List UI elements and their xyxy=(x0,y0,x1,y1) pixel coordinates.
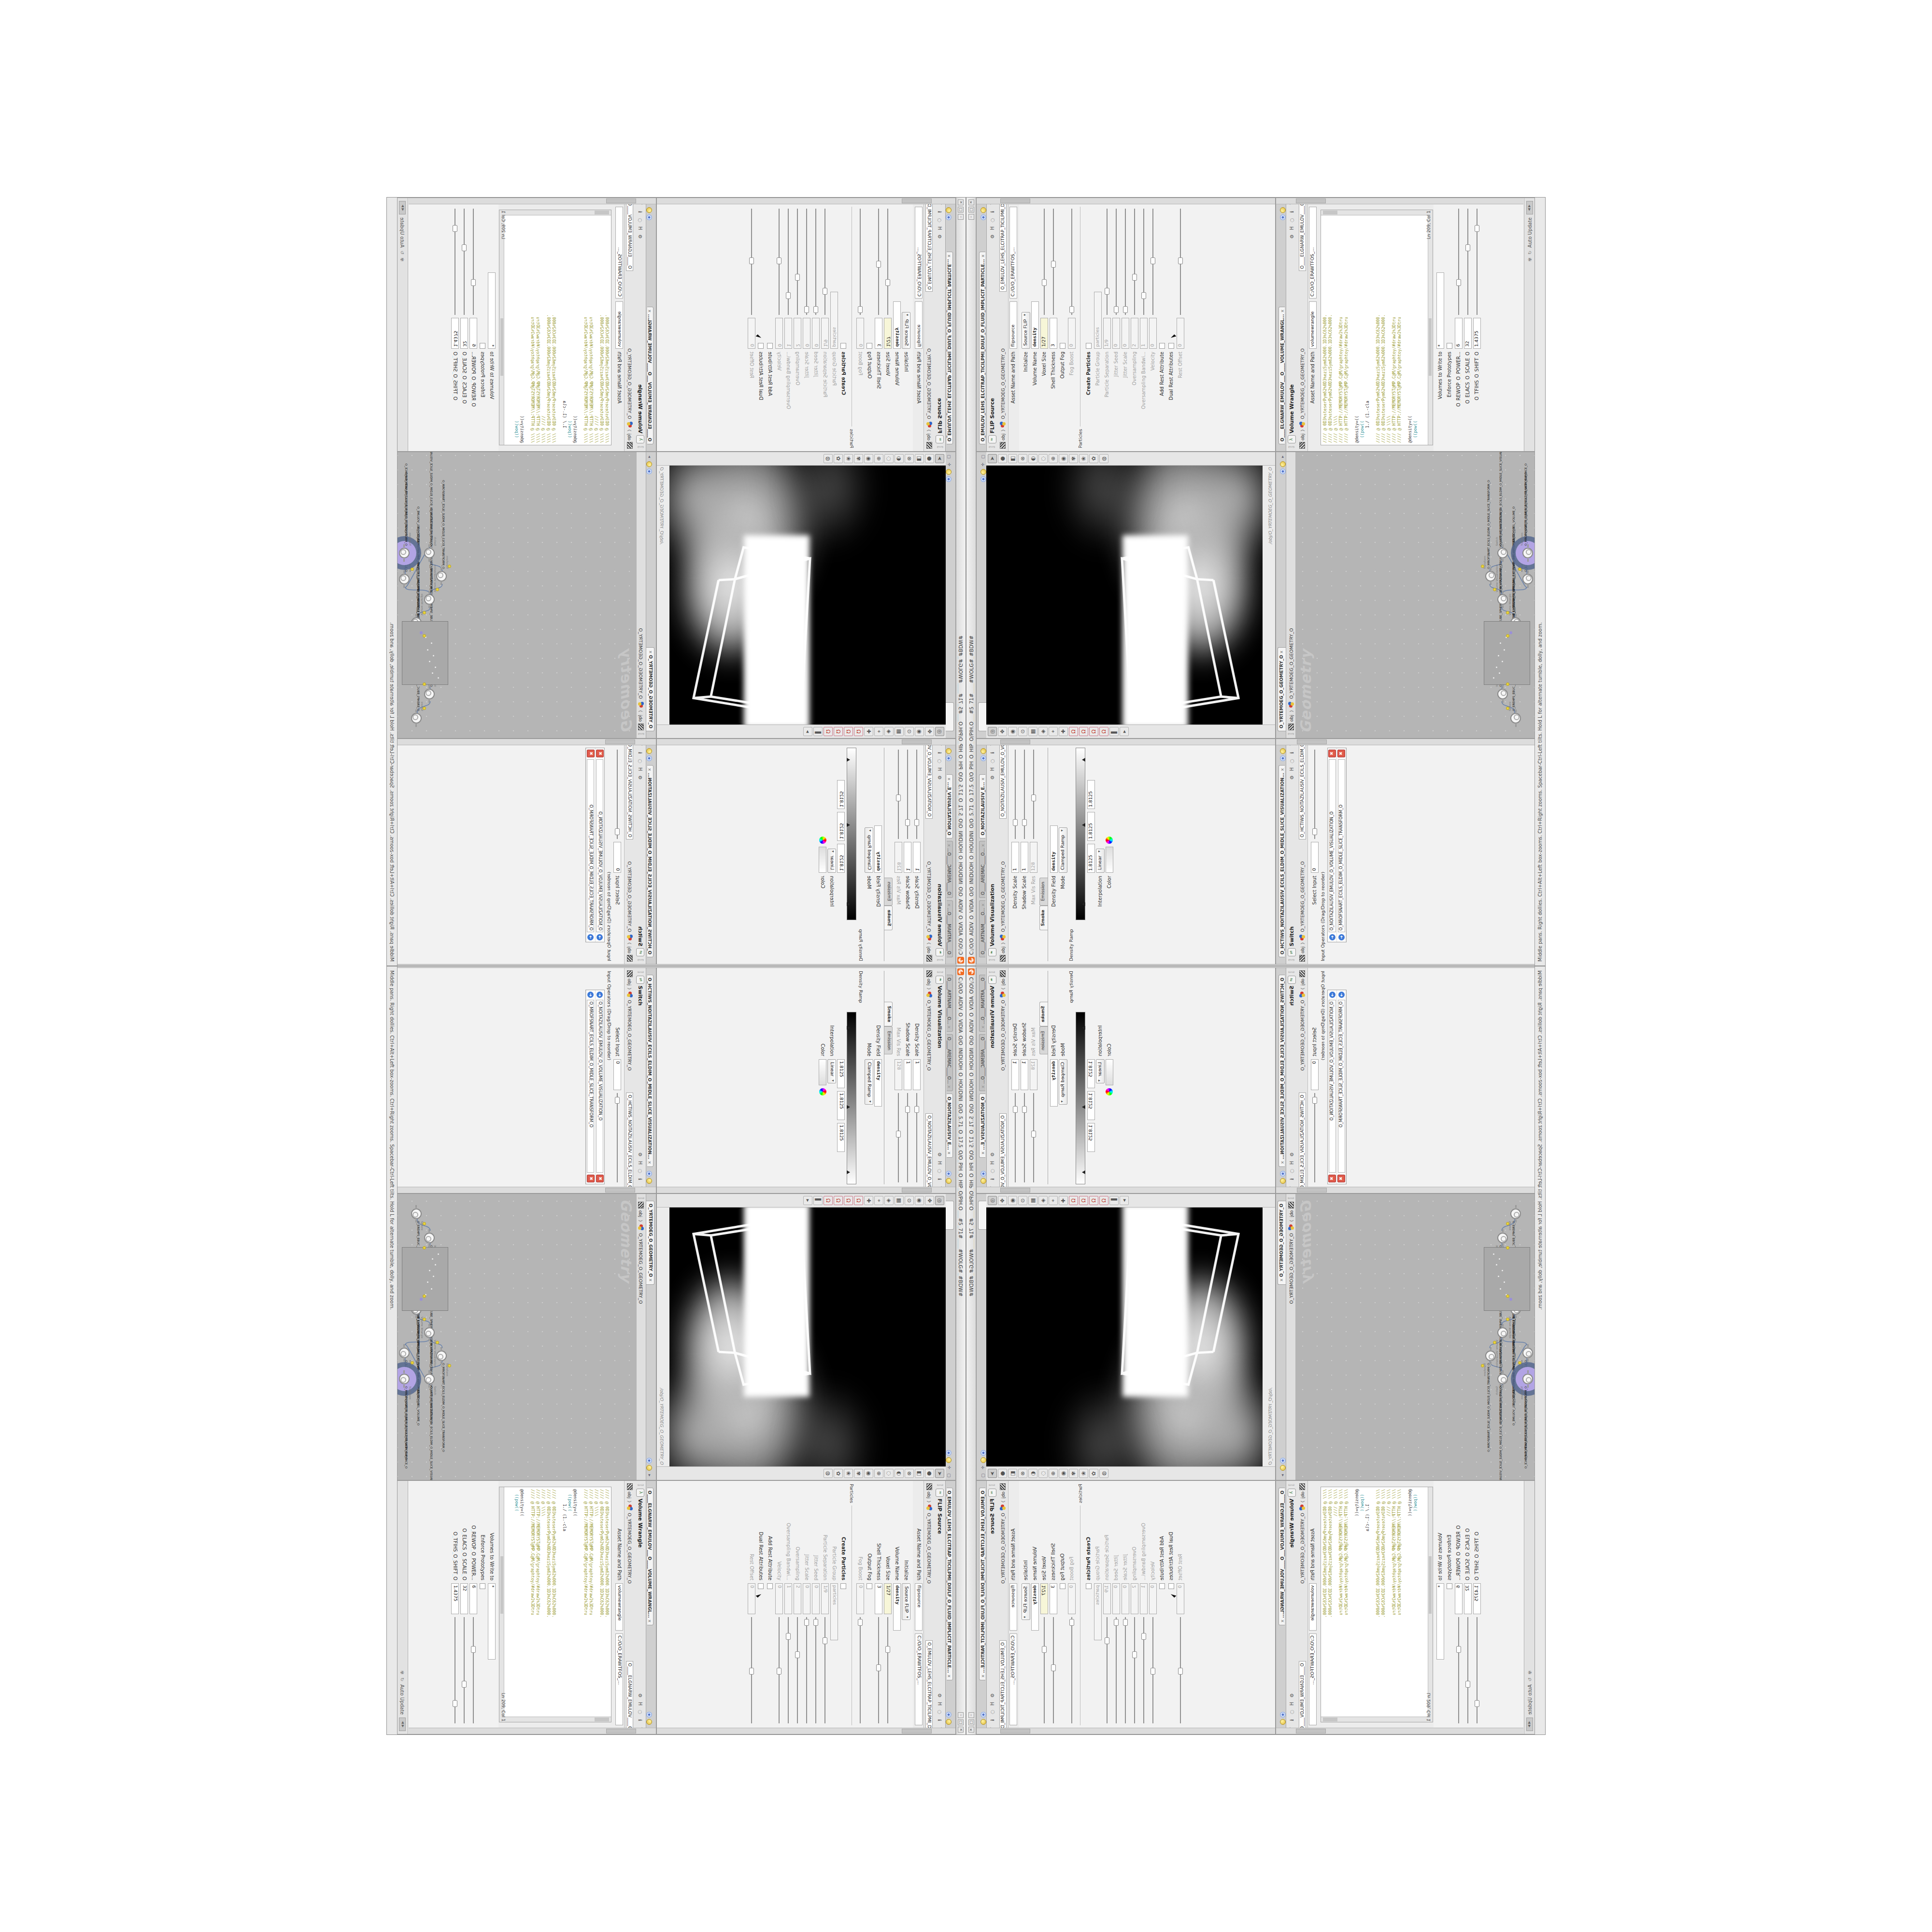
param-field[interactable]: 1/27 xyxy=(1040,1583,1048,1614)
pane-tab[interactable]: O____ELGNARW_EMULOV___O____VOLUME_WRANGL… xyxy=(1279,1488,1285,1625)
jump-to-node-icon[interactable]: ➜ xyxy=(588,992,594,998)
viewport-tool-icon[interactable]: ◎ xyxy=(988,727,997,736)
pin-ball-icon[interactable] xyxy=(980,1719,986,1725)
ramp-marker[interactable] xyxy=(1082,758,1085,762)
viewport-tool-icon[interactable]: ◍ xyxy=(1099,1469,1108,1478)
close-button[interactable]: ✕ xyxy=(968,199,974,205)
param-field[interactable]: 6 xyxy=(1455,318,1463,349)
jump-to-node-icon[interactable]: ➜ xyxy=(1329,934,1335,940)
slider-handle[interactable] xyxy=(1151,1668,1155,1675)
viewport-tool-icon[interactable]: ✾ xyxy=(854,1469,863,1478)
link-radar-icon[interactable] xyxy=(647,469,653,474)
param-slider[interactable] xyxy=(895,1093,902,1184)
link-radar-icon[interactable] xyxy=(647,755,653,761)
ramp-value-field[interactable]: 1.8125 xyxy=(838,1123,845,1152)
viewport-tool-icon[interactable]: Ω xyxy=(1079,727,1088,736)
maximize-button[interactable]: □ xyxy=(968,1719,974,1725)
link-radar-icon[interactable] xyxy=(946,1450,952,1456)
slider-handle[interactable] xyxy=(1132,1651,1137,1658)
color-swatch[interactable] xyxy=(819,1059,827,1085)
delete-input-icon[interactable]: ✖ xyxy=(1328,750,1336,757)
viewport-tool-icon[interactable]: ◧ xyxy=(1008,1469,1017,1478)
viewport-tool-icon[interactable]: ❀ xyxy=(844,454,853,463)
node-flag-dot[interactable] xyxy=(1506,634,1509,638)
param-slider[interactable] xyxy=(1122,1617,1129,1725)
pane-max-icon[interactable]: ▢ xyxy=(946,1472,952,1478)
node-flag-dot[interactable] xyxy=(1506,707,1509,710)
tab-scroll-icon[interactable]: ▸ xyxy=(646,454,653,460)
asset-path-field[interactable]: C:/O/O_ERAWTFOS_... xyxy=(1309,1634,1317,1725)
asset-path-field[interactable]: C:/O/O_ERAWTFOS_... xyxy=(915,207,923,298)
viewport-tool-icon[interactable]: ⊙ xyxy=(905,727,914,736)
breadcrumb-root[interactable]: obj xyxy=(927,979,932,985)
viewport-tool-icon[interactable]: ● xyxy=(925,454,934,463)
viewport-tool-icon[interactable]: ✾ xyxy=(854,454,863,463)
ramp-value-field[interactable]: 1.8125 xyxy=(1087,844,1095,873)
gear-icon[interactable]: ⚙ xyxy=(638,1692,643,1699)
viewport-render[interactable] xyxy=(669,466,946,724)
title-bar[interactable]: C:/O/O_AIDIV_O_VIDIA_O/O_INIDUOH_O_HOUDI… xyxy=(956,966,966,1734)
houdini-help-icon[interactable]: H xyxy=(1289,766,1294,772)
houdini-help-icon[interactable]: H xyxy=(990,766,995,772)
node-name-field[interactable]: O____ELGNARW_EMULOV____O xyxy=(1299,1661,1306,1732)
param-slider[interactable] xyxy=(1140,1617,1147,1725)
gear-icon[interactable]: ⚙ xyxy=(990,774,995,781)
network-node[interactable]: Sphere O_EREHPS_EBUC_O_CUBE_SPHERE_O xyxy=(1510,1208,1522,1220)
viewport-tool-icon[interactable]: ❀ xyxy=(844,1469,853,1478)
viewport-tool-icon[interactable]: ▸ xyxy=(803,1196,812,1205)
tab-close-icon[interactable]: × xyxy=(947,255,951,258)
viewport-tool-icon[interactable]: ◉ xyxy=(864,454,873,463)
gear-icon[interactable]: ⚙ xyxy=(638,233,643,240)
param-field[interactable]: 0 xyxy=(1122,1583,1129,1614)
ramp-value-field[interactable]: 1.8125 xyxy=(838,780,845,809)
pin-ball-icon[interactable] xyxy=(1280,1719,1286,1725)
viewport-tool-icon[interactable]: Ω xyxy=(854,1196,863,1205)
slider-handle[interactable] xyxy=(750,1668,754,1675)
param-checkbox[interactable] xyxy=(1168,343,1174,349)
viewport-tool-icon[interactable]: ◌ xyxy=(884,1469,894,1478)
pin-ball-icon[interactable] xyxy=(946,469,952,475)
node-name-field[interactable]: O_EMULOV_LEHS_ELCITRAP_TICILPMI_DI xyxy=(999,200,1007,292)
viewport-tool-icon[interactable]: ◉ xyxy=(1008,727,1017,736)
slider-handle[interactable] xyxy=(1042,279,1047,286)
param-slider[interactable] xyxy=(776,207,783,315)
node-name-field[interactable]: O_NOITAZILAUSIV_EMULOV_O_VO xyxy=(926,741,933,819)
viewport-tool-icon[interactable]: ✥ xyxy=(998,1196,1007,1205)
input-operator-field[interactable]: O_MROFSNART_ECILS_ELDIM_O_MIDLE_SLICE_TR… xyxy=(587,1000,595,1173)
tab-close-icon[interactable]: × xyxy=(1280,768,1285,771)
slider-handle[interactable] xyxy=(915,1106,920,1113)
param-slider[interactable] xyxy=(876,207,882,315)
slider-handle[interactable] xyxy=(1022,819,1027,826)
param-field[interactable]: 2 xyxy=(794,1583,802,1614)
breadcrumb-root[interactable]: obj xyxy=(627,434,633,440)
param-checkbox[interactable] xyxy=(1086,1583,1092,1589)
network-minimap[interactable] xyxy=(1484,621,1530,685)
param-field[interactable]: 1 xyxy=(1011,842,1019,873)
slider-handle[interactable] xyxy=(1051,1664,1056,1671)
viewport-tool-icon[interactable]: Ω xyxy=(834,727,843,736)
param-field[interactable]: 3 xyxy=(875,318,883,349)
info-icon[interactable]: ℹ xyxy=(990,1717,995,1723)
search-icon[interactable]: ◌ xyxy=(1289,1168,1294,1174)
pane-tab[interactable]: O_HCTIWS_NOITAZILAUSIV_ECILS_ELDIM_O_MID… xyxy=(647,975,653,1167)
network-canvas[interactable]: Geometry Sphere O_EREHPS_EBUC_O_CUBE_SPH… xyxy=(397,1194,637,1480)
param-field[interactable]: 6 xyxy=(470,318,478,349)
param-field[interactable]: 1 xyxy=(1021,842,1028,873)
viewport-tool-icon[interactable]: ▸ xyxy=(1120,1196,1129,1205)
scrollbar[interactable] xyxy=(409,198,656,204)
node-flag-dot[interactable] xyxy=(1506,1222,1509,1225)
param-checkbox[interactable] xyxy=(867,343,873,349)
vex-code-editor[interactable]: //// @ 0D3%steserPym62%0D3%eziSym62%000.… xyxy=(1321,210,1433,445)
pane-tab[interactable]: O_EMULOV_LEHS_ELCITRAP_TICILPMI_DIULF_O_… xyxy=(947,252,953,444)
param-field[interactable]: 1 xyxy=(1021,1059,1028,1090)
slider-handle[interactable] xyxy=(1475,1700,1479,1707)
param-checkbox[interactable] xyxy=(1159,343,1165,349)
param-checkbox[interactable] xyxy=(841,343,847,349)
pin-ball-icon[interactable] xyxy=(946,1457,952,1463)
slider-handle[interactable] xyxy=(906,819,910,826)
link-radar-icon[interactable] xyxy=(1280,214,1286,220)
slider-handle[interactable] xyxy=(615,828,620,835)
network-node[interactable]: Wireframe O_EMARFERIW_NOGYLOP_EREHPS_EBU… xyxy=(1497,688,1509,699)
param-slider[interactable] xyxy=(1474,1617,1480,1725)
param-slider[interactable] xyxy=(914,1093,921,1184)
pane-tab[interactable]: O____AREMAC____O...× xyxy=(947,1034,953,1091)
viewport-tool-icon[interactable]: ◍ xyxy=(824,454,833,463)
node-flag-dot[interactable] xyxy=(423,707,426,710)
scrollbar[interactable] xyxy=(397,739,656,745)
node-name-field[interactable]: O_NOITAZILAUSIV_EMULOV_O_VO xyxy=(926,1113,933,1191)
viewport-tool-icon[interactable]: ⊗ xyxy=(1018,1469,1027,1478)
history-arrows-icon[interactable]: ⇧⇩ xyxy=(1288,732,1294,736)
param-field[interactable]: density xyxy=(1031,1583,1039,1631)
node-flag-dot[interactable] xyxy=(436,588,439,591)
node-flag-dot[interactable] xyxy=(1506,682,1509,686)
scrollbar[interactable] xyxy=(657,739,955,745)
breadcrumb-network[interactable]: O_YRTEMOEG_O_GEOMETRY_O xyxy=(1289,628,1294,699)
scrollbar[interactable] xyxy=(977,1187,1275,1193)
code-hscrollbar[interactable] xyxy=(499,215,504,445)
input-operator-field[interactable]: O_NOITAZILAUSIV_EMULOV_O_VOLUME_VISUALIZ… xyxy=(1329,1000,1336,1173)
param-field[interactable]: particles xyxy=(831,1583,838,1640)
node-flag-dot[interactable] xyxy=(1481,565,1484,568)
viewport-tool-icon[interactable]: ◉ xyxy=(1008,1196,1017,1205)
viewport-tool-icon[interactable]: ✿ xyxy=(1089,454,1098,463)
asset-path-field[interactable]: C:/O/O_ERAWTFOS_... xyxy=(1009,1634,1017,1725)
viewport-tool-icon[interactable]: ⊗ xyxy=(1018,454,1027,463)
param-checkbox[interactable] xyxy=(1086,343,1092,349)
tab-close-icon[interactable]: × xyxy=(947,777,951,781)
folder-tab[interactable]: Smoke xyxy=(884,1002,893,1027)
ramp-marker[interactable] xyxy=(1082,1026,1085,1030)
param-slider[interactable] xyxy=(813,207,820,315)
delete-input-icon[interactable]: ✖ xyxy=(1337,750,1345,757)
breadcrumb-root[interactable]: obj xyxy=(1300,434,1305,440)
link-radar-icon[interactable] xyxy=(946,476,952,482)
density-ramp[interactable] xyxy=(1076,1012,1085,1184)
slider-handle[interactable] xyxy=(814,306,819,313)
param-dropdown[interactable]: Clamped Ramp xyxy=(865,827,874,873)
houdini-help-icon[interactable]: H xyxy=(938,225,943,231)
tab-close-icon[interactable]: × xyxy=(647,1161,652,1164)
param-checkbox[interactable] xyxy=(867,1583,873,1589)
param-checkbox[interactable] xyxy=(1447,1583,1452,1589)
param-slider[interactable] xyxy=(461,1617,468,1725)
param-checkbox[interactable] xyxy=(767,1583,773,1589)
slider-handle[interactable] xyxy=(886,279,891,286)
param-slider[interactable] xyxy=(1030,748,1037,839)
param-slider[interactable] xyxy=(614,1093,621,1184)
slider-handle[interactable] xyxy=(796,1651,800,1658)
slider-handle[interactable] xyxy=(823,1637,828,1644)
param-slider[interactable] xyxy=(1012,1093,1019,1184)
info-icon[interactable]: ℹ xyxy=(1289,750,1294,756)
param-field[interactable]: 1 xyxy=(913,1059,921,1090)
link-radar-icon[interactable] xyxy=(1280,1458,1286,1463)
param-slider[interactable] xyxy=(1113,207,1120,315)
breadcrumb-network[interactable]: O_YRTEMOEG_O_GEOMETRY_O xyxy=(627,348,633,419)
maximize-button[interactable]: □ xyxy=(958,1719,964,1725)
viewport-tool-icon[interactable]: ⌖ xyxy=(874,727,883,736)
tab-close-icon[interactable]: × xyxy=(1279,1279,1284,1282)
pane-tab[interactable]: O____ARTNAM____O...× xyxy=(947,975,953,1032)
viewport-tool-icon[interactable]: ◉ xyxy=(864,1469,873,1478)
breadcrumb-network[interactable]: O_YRTEMOEG_O_GEOMETRY_O xyxy=(639,1233,644,1304)
slider-handle[interactable] xyxy=(1013,1106,1018,1113)
folder-tab[interactable]: Smoke xyxy=(1039,1002,1048,1027)
node-name-field[interactable]: O____ELGNARW_EMULOV____O xyxy=(626,200,634,271)
pane-tab[interactable]: O_YRTEMOEG_O_GEOMETRY_O× xyxy=(646,647,654,731)
ramp-value-field[interactable]: 1.8125 xyxy=(838,1059,845,1088)
slider-handle[interactable] xyxy=(915,819,920,826)
link-radar-icon[interactable] xyxy=(946,1171,952,1177)
param-slider[interactable] xyxy=(1122,207,1129,315)
param-slider[interactable] xyxy=(804,1617,810,1725)
pane-tab[interactable]: O____AREMAC____O...× xyxy=(947,841,953,898)
slider-handle[interactable] xyxy=(1114,306,1119,313)
info-icon[interactable]: ℹ xyxy=(938,750,943,756)
breadcrumb-root[interactable]: obj xyxy=(639,715,644,722)
param-field[interactable]: 1.4375 xyxy=(452,1583,459,1614)
jump-to-node-icon[interactable]: ➜ xyxy=(597,934,603,940)
param-field[interactable]: 0 xyxy=(1122,318,1129,349)
param-slider[interactable] xyxy=(885,1617,892,1725)
vex-code-editor[interactable]: //// @ 0D3%steserPym62%0D3%eziSym62%000.… xyxy=(1321,1487,1433,1722)
ramp-value-field[interactable]: 1.8125 xyxy=(1087,812,1095,841)
viewport-tool-icon[interactable]: Ω xyxy=(854,727,863,736)
gear-icon[interactable]: ⚙ xyxy=(1289,1692,1294,1699)
recook-icon[interactable]: ↻ xyxy=(1527,1677,1533,1681)
pin-ball-icon[interactable] xyxy=(980,748,986,754)
houdini-help-icon[interactable]: H xyxy=(990,225,995,231)
info-icon[interactable]: ℹ xyxy=(990,750,995,756)
breadcrumb-network[interactable]: O_YRTEMOEG_O_GEOMETRY_O xyxy=(1000,861,1006,932)
network-node[interactable]: Switch O_HCTIWS_NOITAZILAUSIV_ECILS_ELDI… xyxy=(1497,1374,1509,1385)
viewport-tool-icon[interactable]: ⊕ xyxy=(874,454,883,463)
slider-handle[interactable] xyxy=(1178,1668,1183,1675)
pane-max-icon[interactable]: ▢ xyxy=(946,454,952,460)
folder-tab[interactable]: Emission xyxy=(1039,1026,1048,1054)
tab-scroll-icon[interactable]: ▸ xyxy=(646,1472,653,1478)
tab-close-icon[interactable]: × xyxy=(947,903,951,907)
gear-icon[interactable]: ⚙ xyxy=(938,233,943,240)
tab-close-icon[interactable]: × xyxy=(1280,1161,1285,1164)
gear-icon[interactable]: ⚙ xyxy=(990,1692,995,1699)
param-field[interactable]: 1/9 xyxy=(822,318,829,349)
slider-handle[interactable] xyxy=(750,257,754,264)
pane-tab[interactable]: O_YRTEMOEG_O_GEOMETRY_O× xyxy=(646,1201,654,1285)
breadcrumb-root[interactable]: obj xyxy=(1000,434,1006,440)
slider-handle[interactable] xyxy=(858,306,863,313)
param-field[interactable]: 1 xyxy=(1011,1059,1019,1090)
param-slider[interactable] xyxy=(905,1093,911,1184)
network-node[interactable]: Sphere O_EREHPS_EBUC_O_CUBE_SPHERE_O xyxy=(410,712,422,724)
maximize-button[interactable]: □ xyxy=(958,207,964,213)
node-name-field[interactable]: O_HCTIWS_NOITAZILAUSIV_ECILS_ELDIM_O xyxy=(626,1093,634,1191)
link-radar-icon[interactable] xyxy=(980,476,986,482)
pane-corner-icon[interactable]: ✛ xyxy=(980,1464,986,1471)
tab-close-icon[interactable]: × xyxy=(981,1085,985,1089)
history-arrows-icon[interactable]: ⇧⇩ xyxy=(989,445,995,449)
link-radar-icon[interactable] xyxy=(980,214,986,220)
param-slider[interactable] xyxy=(1050,1617,1057,1725)
slider-handle[interactable] xyxy=(1465,244,1470,251)
scrollbar[interactable] xyxy=(657,198,955,204)
tab-close-icon[interactable]: × xyxy=(647,310,652,313)
node-flag-dot[interactable] xyxy=(1506,1294,1509,1298)
pane-corner-icon[interactable]: ✛ xyxy=(946,1464,952,1471)
slider-handle[interactable] xyxy=(1123,306,1128,313)
link-radar-icon[interactable] xyxy=(1280,755,1286,761)
slider-handle[interactable] xyxy=(1031,1131,1036,1137)
param-field[interactable]: 1/9 xyxy=(1103,1583,1111,1614)
history-arrows-icon[interactable]: ⇧⇩ xyxy=(637,958,644,962)
viewport-tool-icon[interactable]: ⌖ xyxy=(874,1196,883,1205)
param-slider[interactable] xyxy=(1131,1617,1138,1725)
history-arrows-icon[interactable]: ⇧⇩ xyxy=(1288,970,1295,974)
breadcrumb-network[interactable]: O_YRTEMOEG_O_GEOMETRY_O xyxy=(627,1000,633,1071)
asset-name-field[interactable]: flipsource xyxy=(1009,301,1017,349)
tab-scroll-icon[interactable]: ▸ xyxy=(1279,454,1286,460)
param-slider[interactable] xyxy=(822,1617,829,1725)
ramp-value-field[interactable]: 1.8125 xyxy=(1087,1059,1095,1088)
viewport-tool-icon[interactable]: Ω xyxy=(834,1196,843,1205)
slider-handle[interactable] xyxy=(805,1619,810,1626)
param-checkbox[interactable] xyxy=(758,1583,764,1589)
pin-ball-icon[interactable] xyxy=(1280,1178,1286,1184)
houdini-help-icon[interactable]: H xyxy=(638,1701,643,1707)
slider-handle[interactable] xyxy=(1105,288,1109,295)
tab-close-icon[interactable]: × xyxy=(981,844,985,847)
link-radar-icon[interactable] xyxy=(1280,469,1286,474)
node-flag-dot[interactable] xyxy=(448,1364,451,1367)
slider-handle[interactable] xyxy=(1022,1106,1027,1113)
viewport-tool-icon[interactable]: Ω xyxy=(844,1196,853,1205)
gear-icon[interactable]: ⚙ xyxy=(1289,233,1294,240)
network-canvas[interactable]: Geometry Sphere O_EREHPS_EBUC_O_CUBE_SPH… xyxy=(1295,1194,1535,1480)
pane-tab[interactable]: O_HCTIWS_NOITAZILAUSIV_ECILS_ELDIM_O_MID… xyxy=(1279,765,1285,957)
info-icon[interactable]: ℹ xyxy=(638,209,643,215)
scroll-nub[interactable]: ◀ ▶ xyxy=(399,201,406,214)
param-slider[interactable] xyxy=(905,748,911,839)
network-minimap[interactable] xyxy=(402,621,448,685)
viewport-tool-icon[interactable]: Ω xyxy=(1089,727,1098,736)
info-icon[interactable]: ℹ xyxy=(938,1176,943,1182)
slider-handle[interactable] xyxy=(786,1633,791,1640)
param-dropdown[interactable]: Linear xyxy=(1096,849,1105,873)
breadcrumb-network[interactable]: O_YRTEMOEG_O_GEOMETRY_O xyxy=(1300,1513,1305,1584)
param-field[interactable]: 1 xyxy=(904,1059,912,1090)
pane-max-icon[interactable]: ▢ xyxy=(980,454,986,460)
info-icon[interactable]: ℹ xyxy=(1289,209,1294,215)
input-operator-field[interactable]: O_NOITAZILAUSIV_EMULOV_O_VOLUME_VISUALIZ… xyxy=(1329,759,1336,932)
param-slider[interactable] xyxy=(857,207,864,315)
param-field[interactable]: 0 xyxy=(748,318,756,349)
auto-update-dropdown[interactable]: Auto Update xyxy=(400,1684,405,1715)
pin-ball-icon[interactable] xyxy=(1280,748,1286,754)
breadcrumb-network[interactable]: O_YRTEMOEG_O_GEOMETRY_O xyxy=(1300,348,1305,419)
asset-name-field[interactable]: flipsource xyxy=(915,301,923,349)
link-radar-icon[interactable] xyxy=(980,1171,986,1177)
search-icon[interactable]: ◌ xyxy=(638,758,643,764)
viewport-tool-icon[interactable]: ● xyxy=(925,1469,934,1478)
viewport-tool-icon[interactable]: ✚ xyxy=(864,1196,873,1205)
history-arrows-icon[interactable]: ⇧⇩ xyxy=(1288,445,1295,449)
color-wheel-icon[interactable]: ◉ xyxy=(1106,837,1113,844)
param-slider[interactable] xyxy=(1050,207,1057,315)
ramp-marker[interactable] xyxy=(847,902,850,906)
param-field[interactable]: density xyxy=(894,301,901,349)
network-node[interactable]: Transform O_MROFSNART_ECILS_ELDIM_O_MIDL… xyxy=(1485,570,1497,582)
node-flag-dot[interactable] xyxy=(411,568,414,571)
delete-input-icon[interactable]: ✖ xyxy=(1337,1175,1345,1182)
param-field[interactable]: 1/9 xyxy=(1103,318,1111,349)
param-slider[interactable] xyxy=(1104,207,1110,315)
link-radar-icon[interactable] xyxy=(1280,1712,1286,1718)
slider-handle[interactable] xyxy=(877,1664,881,1671)
param-slider[interactable] xyxy=(749,207,755,315)
network-node[interactable]: Merge O_ECAFRUS_HTIW_EMULOV_EGREM_O_MERG… xyxy=(1522,1348,1534,1359)
param-field[interactable]: density xyxy=(875,1059,882,1107)
jump-to-node-icon[interactable]: ➜ xyxy=(1338,934,1345,940)
slider-handle[interactable] xyxy=(786,292,791,299)
param-field[interactable]: 2 xyxy=(1131,318,1138,349)
gear-icon[interactable]: ⚙ xyxy=(990,1151,995,1158)
pane-tab[interactable]: O____AREMAC____O...× xyxy=(979,1034,985,1091)
slider-handle[interactable] xyxy=(471,1646,476,1653)
param-slider[interactable] xyxy=(1464,207,1471,315)
breadcrumb-network[interactable]: O_YRTEMOEG_O_GEOMETRY_O xyxy=(927,1513,932,1584)
param-field[interactable]: 1.4375 xyxy=(452,318,459,349)
pin-ball-icon[interactable] xyxy=(647,207,653,213)
breadcrumb-network[interactable]: O_YRTEMOEG_O_GEOMETRY_O xyxy=(1000,348,1006,419)
pin-ball-icon[interactable] xyxy=(946,1719,952,1725)
param-checkbox[interactable] xyxy=(1060,1583,1065,1589)
ramp-marker[interactable] xyxy=(1082,1170,1085,1174)
viewport-tool-icon[interactable]: Ω xyxy=(844,727,853,736)
history-arrows-icon[interactable]: ⇧⇩ xyxy=(1288,958,1295,962)
houdini-help-icon[interactable]: H xyxy=(938,1701,943,1707)
viewport-tool-icon[interactable]: ➤ xyxy=(935,1469,944,1478)
param-field[interactable]: 0 xyxy=(803,1583,811,1614)
param-field[interactable]: 1 xyxy=(785,1583,793,1614)
viewport-tool-icon[interactable]: ◈ xyxy=(1038,727,1048,736)
history-arrows-icon[interactable]: ⇧⇩ xyxy=(637,1483,644,1487)
pane-tab[interactable] xyxy=(978,702,986,731)
